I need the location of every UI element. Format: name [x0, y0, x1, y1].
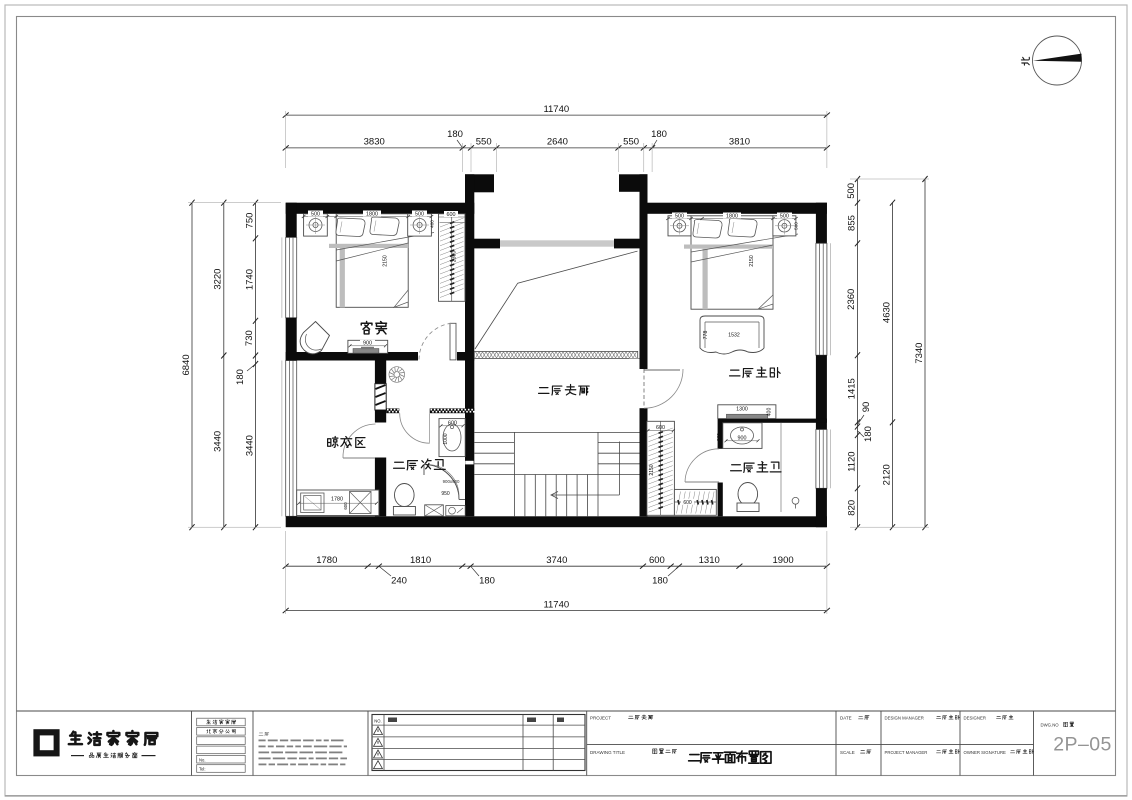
svg-text:2150: 2150: [649, 464, 655, 475]
svg-text:3440: 3440: [213, 431, 224, 452]
svg-text:500: 500: [794, 222, 799, 230]
svg-text:2120: 2120: [881, 464, 892, 485]
svg-text:500: 500: [846, 183, 857, 199]
svg-text:2150: 2150: [749, 255, 755, 267]
svg-text:1415: 1415: [846, 378, 857, 399]
svg-text:1300: 1300: [736, 407, 748, 413]
svg-text:2150: 2150: [383, 255, 389, 267]
svg-text:3830: 3830: [364, 137, 385, 148]
svg-text:1532: 1532: [728, 333, 740, 339]
svg-text:1310: 1310: [699, 555, 720, 566]
svg-text:400: 400: [430, 220, 435, 228]
svg-text:1810: 1810: [410, 555, 431, 566]
svg-text:730: 730: [244, 330, 255, 346]
svg-text:SCALE: SCALE: [840, 750, 855, 755]
svg-text:1900: 1900: [773, 555, 794, 566]
svg-text:3810: 3810: [729, 137, 750, 148]
svg-text:1740: 1740: [244, 269, 255, 290]
svg-text:900: 900: [738, 436, 747, 442]
svg-text:180: 180: [652, 576, 668, 587]
svg-text:4630: 4630: [881, 302, 892, 323]
svg-text:DRAWING TITLE: DRAWING TITLE: [590, 750, 625, 755]
svg-text:DESIGN MANAGER: DESIGN MANAGER: [885, 716, 924, 721]
svg-text:3440: 3440: [244, 435, 255, 456]
svg-text:500: 500: [311, 212, 320, 218]
svg-text:180: 180: [479, 576, 495, 587]
svg-text:2360: 2360: [846, 289, 857, 310]
svg-text:900: 900: [363, 341, 372, 347]
svg-text:500: 500: [716, 433, 721, 441]
svg-text:855: 855: [846, 215, 857, 231]
svg-text:400: 400: [767, 408, 773, 417]
svg-text:500: 500: [675, 214, 684, 220]
svg-text:2300: 2300: [451, 251, 457, 263]
svg-text:500: 500: [415, 212, 424, 218]
svg-text:No.: No.: [199, 757, 206, 762]
svg-text:3220: 3220: [213, 269, 224, 290]
svg-text:180: 180: [235, 369, 246, 385]
svg-text:1000: 1000: [443, 433, 449, 444]
svg-text:820: 820: [846, 500, 857, 516]
svg-text:NO.: NO.: [374, 718, 381, 723]
svg-text:1800: 1800: [366, 212, 378, 218]
svg-text:950: 950: [441, 491, 450, 497]
svg-text:1800: 1800: [726, 214, 738, 220]
svg-text:2640: 2640: [547, 137, 568, 148]
svg-text:DATE: DATE: [840, 716, 852, 721]
svg-text:1120: 1120: [846, 451, 857, 471]
svg-text:600: 600: [448, 420, 457, 426]
svg-text:90: 90: [861, 402, 872, 413]
svg-text:3740: 3740: [546, 555, 567, 566]
svg-text:2P–05: 2P–05: [1053, 734, 1111, 756]
svg-text:750: 750: [244, 213, 255, 229]
svg-text:1780: 1780: [316, 555, 337, 566]
svg-text:600: 600: [656, 425, 665, 431]
svg-text:6840: 6840: [181, 354, 192, 375]
svg-text:PROJECT: PROJECT: [590, 716, 611, 721]
svg-text:550: 550: [476, 137, 492, 148]
svg-text:DESIGNER: DESIGNER: [964, 716, 986, 721]
svg-text:778: 778: [703, 331, 709, 340]
svg-text:180: 180: [863, 426, 874, 442]
svg-text:500: 500: [780, 214, 789, 220]
svg-text:7340: 7340: [914, 343, 925, 364]
svg-text:OWNER SIGNATURE: OWNER SIGNATURE: [964, 750, 1007, 755]
svg-text:11740: 11740: [543, 104, 569, 115]
svg-text:DWG.NO: DWG.NO: [1041, 723, 1060, 728]
svg-text:Tel:: Tel:: [199, 767, 206, 772]
svg-text:600: 600: [683, 500, 692, 506]
svg-text:180: 180: [651, 129, 667, 140]
svg-text:600: 600: [649, 555, 665, 566]
svg-text:240: 240: [391, 576, 407, 587]
svg-text:1780: 1780: [331, 497, 343, 503]
svg-text:11740: 11740: [543, 599, 569, 610]
svg-text:180: 180: [447, 129, 463, 140]
svg-text:PROJECT MANAGER: PROJECT MANAGER: [885, 750, 928, 755]
svg-text:550: 550: [623, 137, 639, 148]
svg-text:600: 600: [447, 212, 456, 218]
svg-text:900x900: 900x900: [443, 479, 460, 484]
svg-text:600: 600: [343, 502, 348, 510]
